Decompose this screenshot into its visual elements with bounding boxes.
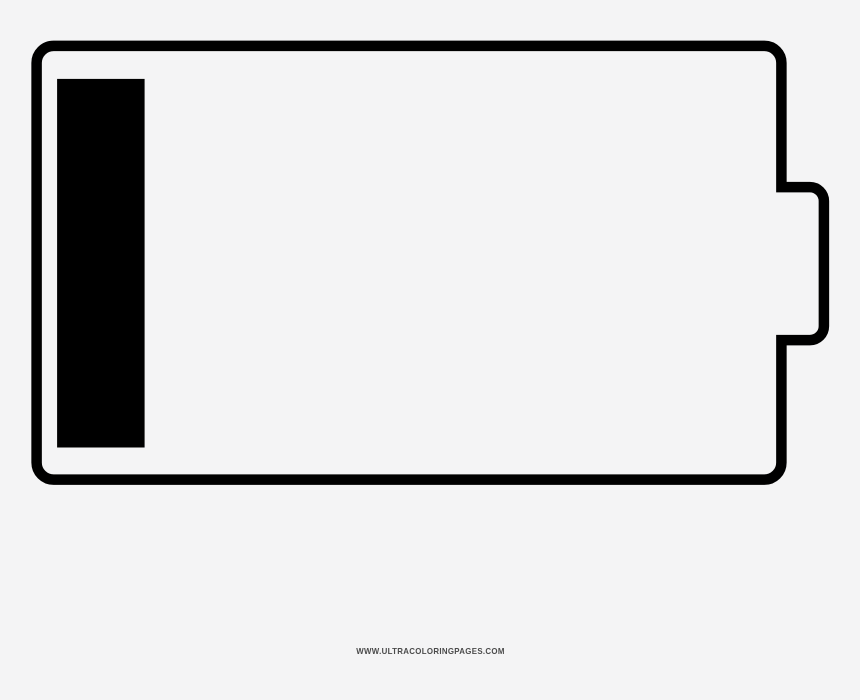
svg-text:WWW.ULTRACOLORINGPAGES.COM: WWW.ULTRACOLORINGPAGES.COM [356, 646, 505, 656]
